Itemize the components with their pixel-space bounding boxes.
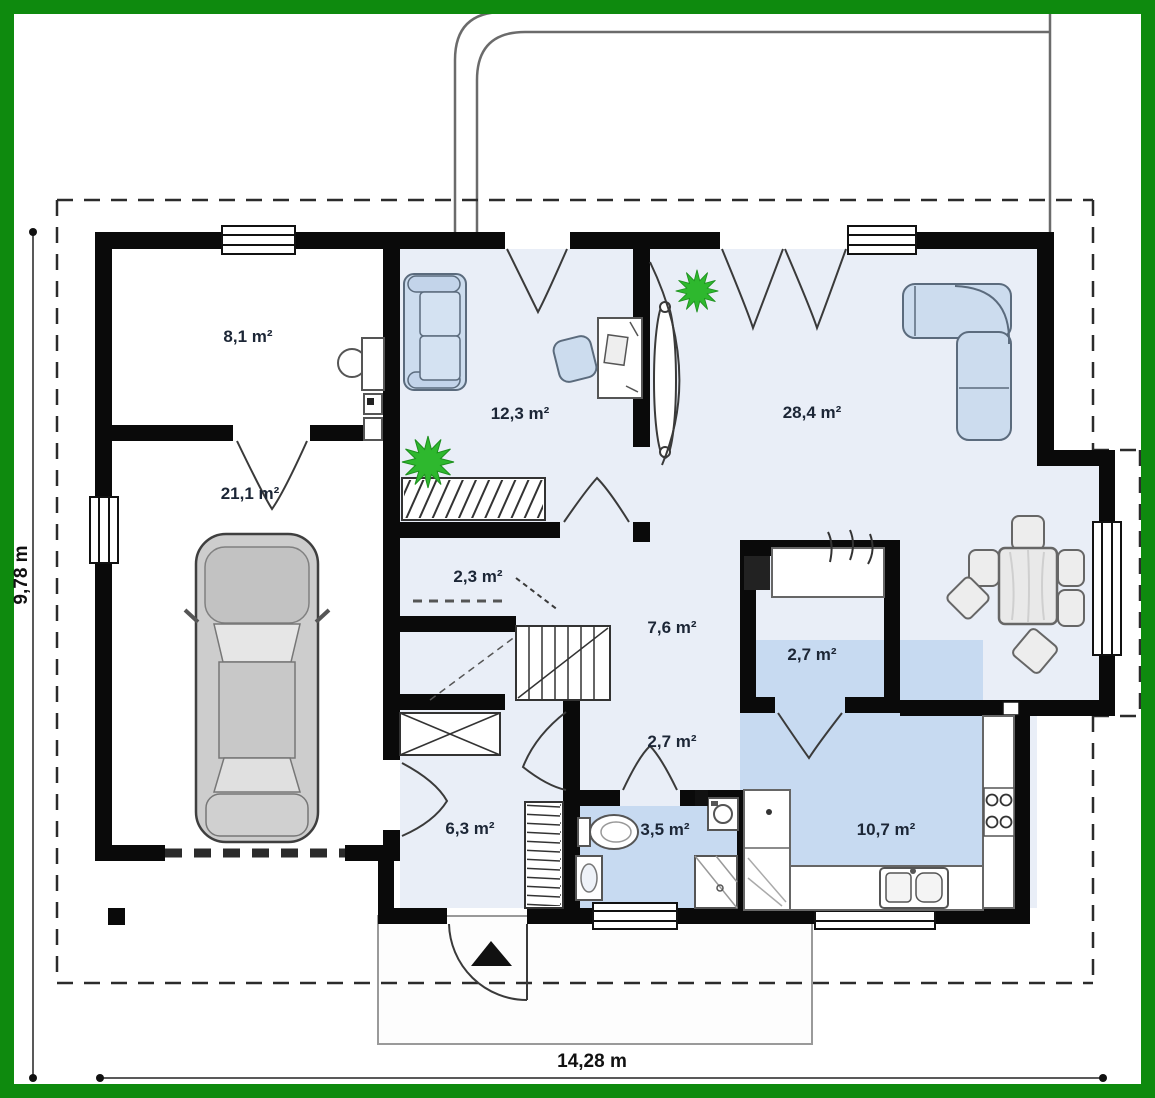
- room-area-label-entry: 6,3 m²: [445, 819, 494, 839]
- window-living-top: [848, 226, 916, 254]
- window-dining-right: [1093, 522, 1121, 655]
- porch-column: [108, 908, 125, 925]
- room-area-label-kitchen: 10,7 m²: [857, 820, 916, 840]
- entry-porch-slab: [378, 916, 812, 1044]
- room-area-label-hall: 7,6 m²: [647, 618, 696, 638]
- room-area-label-office: 12,3 m²: [491, 404, 550, 424]
- room-area-label-closet: 2,3 m²: [453, 567, 502, 587]
- car-icon: [185, 534, 329, 842]
- counter-knob: [766, 809, 772, 815]
- floor-plan-canvas: 8,1 m² 21,1 m² 12,3 m² 28,4 m² 2,3 m² 7,…: [0, 0, 1155, 1098]
- overall-height-dimension: 9,78 m: [11, 545, 33, 604]
- room-area-label-corridor: 2,7 m²: [647, 732, 696, 752]
- room-area-label-utility: 8,1 m²: [223, 327, 272, 347]
- window-bathroom-bottom: [593, 903, 677, 929]
- window-garage-left: [90, 497, 118, 563]
- wardrobe-entry: [525, 802, 563, 908]
- overall-width-dimension: 14,28 m: [557, 1051, 627, 1073]
- cooktop: [984, 788, 1014, 836]
- toilet: [578, 815, 638, 849]
- room-area-label-living: 28,4 m²: [783, 403, 842, 423]
- washing-machine: [708, 798, 738, 830]
- boiler: [338, 338, 384, 440]
- sofa-office: [404, 274, 466, 390]
- understairs-storage: [400, 713, 500, 755]
- desk-office: [598, 318, 642, 398]
- room-area-label-pantry: 2,7 m²: [787, 645, 836, 665]
- window-utility-top: [222, 226, 295, 254]
- kitchen-sink: [880, 868, 948, 908]
- kitchen-vent-window: [1003, 702, 1019, 715]
- bathroom-shelf: [695, 790, 708, 806]
- room-area-label-garage: 21,1 m²: [221, 484, 280, 504]
- wardrobe-office: [402, 478, 545, 520]
- floor-plan-drawing: [0, 0, 1155, 1098]
- washbasin: [576, 856, 602, 900]
- room-area-label-bathroom: 3,5 m²: [640, 820, 689, 840]
- shower: [695, 856, 737, 908]
